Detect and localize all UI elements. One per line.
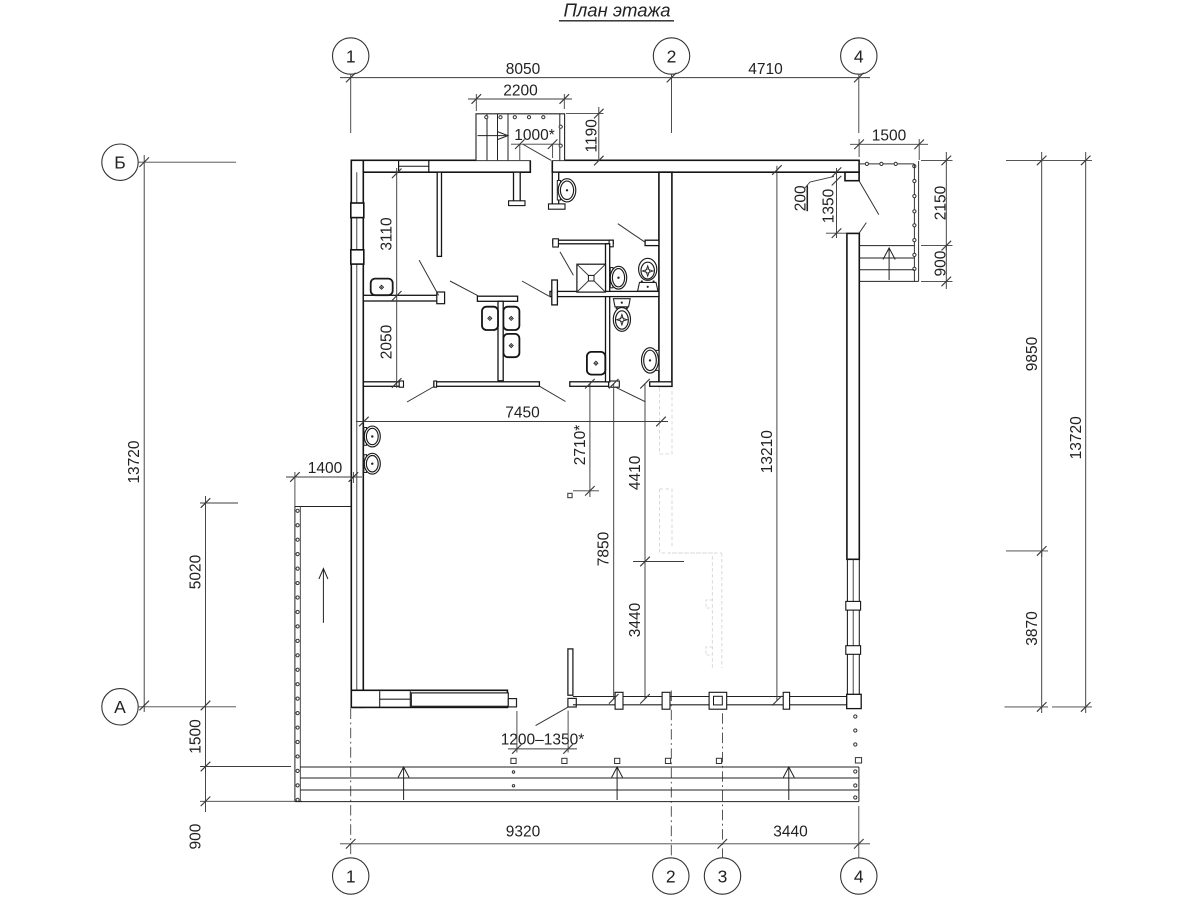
svg-text:3440: 3440	[773, 823, 808, 840]
svg-text:1500: 1500	[872, 127, 907, 144]
svg-text:7850: 7850	[596, 531, 613, 566]
svg-text:13720: 13720	[1068, 416, 1085, 459]
svg-text:9320: 9320	[506, 823, 541, 840]
svg-text:8050: 8050	[506, 61, 541, 78]
svg-text:2200: 2200	[503, 83, 538, 100]
svg-text:2: 2	[666, 866, 676, 886]
svg-text:2710*: 2710*	[572, 425, 589, 466]
svg-text:1350: 1350	[820, 188, 837, 223]
svg-text:2150: 2150	[932, 185, 949, 220]
svg-text:А: А	[114, 697, 126, 717]
svg-text:900: 900	[932, 250, 949, 276]
svg-text:1: 1	[346, 866, 356, 886]
svg-text:200: 200	[793, 185, 810, 211]
svg-text:13210: 13210	[759, 430, 776, 473]
svg-text:1500: 1500	[188, 719, 205, 754]
svg-text:1000*: 1000*	[514, 127, 555, 144]
svg-text:2: 2	[667, 46, 677, 66]
svg-text:1: 1	[346, 46, 356, 66]
svg-text:3110: 3110	[379, 217, 396, 251]
svg-text:План этажа: План этажа	[563, 0, 670, 21]
svg-text:1190: 1190	[583, 119, 600, 153]
svg-text:900: 900	[188, 823, 205, 849]
svg-text:4410: 4410	[627, 455, 644, 490]
svg-text:5020: 5020	[188, 554, 205, 589]
svg-text:Б: Б	[114, 153, 125, 173]
svg-text:9850: 9850	[1024, 336, 1041, 371]
svg-text:4: 4	[854, 866, 864, 886]
svg-text:7450: 7450	[505, 404, 540, 421]
svg-text:3: 3	[718, 866, 728, 886]
svg-text:3440: 3440	[627, 602, 644, 637]
svg-text:1400: 1400	[308, 460, 343, 477]
svg-text:3870: 3870	[1024, 611, 1041, 646]
svg-text:4710: 4710	[748, 61, 783, 78]
svg-text:2050: 2050	[379, 324, 396, 359]
svg-text:4: 4	[854, 46, 864, 66]
svg-text:13720: 13720	[126, 440, 143, 483]
